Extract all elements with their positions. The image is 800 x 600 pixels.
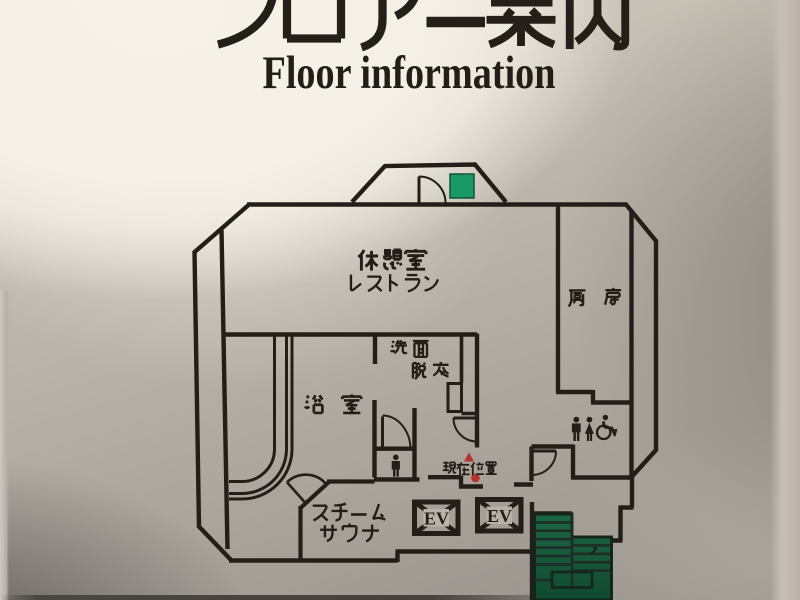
svg-text:EV: EV bbox=[487, 506, 512, 526]
svg-text:EV: EV bbox=[424, 509, 449, 529]
svg-text:Floor information: Floor information bbox=[263, 47, 556, 99]
